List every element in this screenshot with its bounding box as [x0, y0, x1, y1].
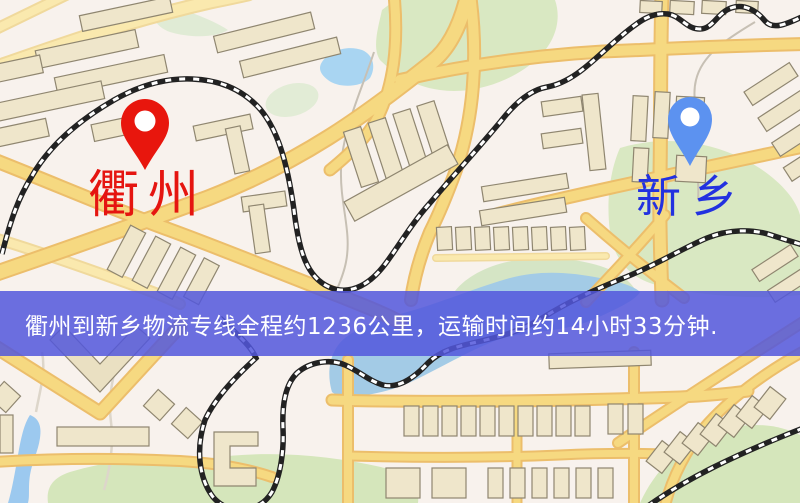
destination-marker[interactable]	[664, 95, 716, 169]
destination-pin-icon	[664, 95, 716, 169]
destination-label: 新乡	[636, 174, 748, 219]
route-info-text: 衢州到新乡物流专线全程约1236公里，运输时间约14小时33分钟.	[25, 307, 718, 341]
map-view: 衢州 新乡 衢州到新乡物流专线全程约1236公里，运输时间约14小时33分钟.	[0, 0, 800, 503]
origin-marker[interactable]	[116, 97, 174, 173]
origin-label: 衢州	[88, 170, 208, 221]
route-info-banner: 衢州到新乡物流专线全程约1236公里，运输时间约14小时33分钟.	[0, 291, 800, 356]
origin-pin-icon	[116, 97, 174, 173]
map-background	[0, 0, 800, 503]
